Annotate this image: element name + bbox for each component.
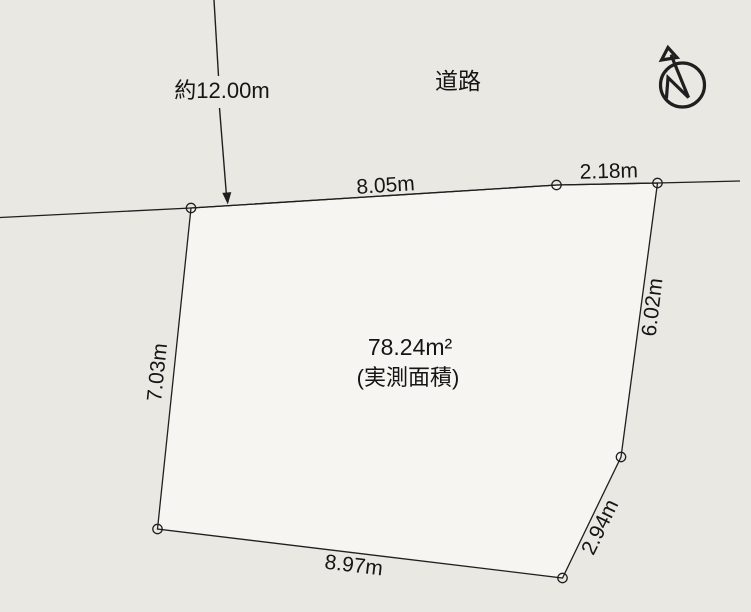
area-value: 78.24m² bbox=[368, 334, 453, 360]
road-label: 道路 bbox=[435, 68, 481, 94]
compass-arrowhead bbox=[662, 48, 678, 61]
north-compass-icon bbox=[661, 48, 705, 108]
edge-top-right-label: 2.18m bbox=[579, 159, 638, 184]
road-width-label: 約12.00m bbox=[174, 78, 269, 103]
site-plan-diagram: 道路 約12.00m 8.05m 2.18m 6.02m 2.94m 8.97m… bbox=[0, 0, 751, 612]
area-caption: (実測面積) bbox=[357, 365, 460, 390]
site-plan-svg: 道路 約12.00m 8.05m 2.18m 6.02m 2.94m 8.97m… bbox=[0, 0, 751, 612]
edge-left-label: 7.03m bbox=[143, 342, 172, 402]
edge-top-label: 8.05m bbox=[356, 172, 416, 199]
